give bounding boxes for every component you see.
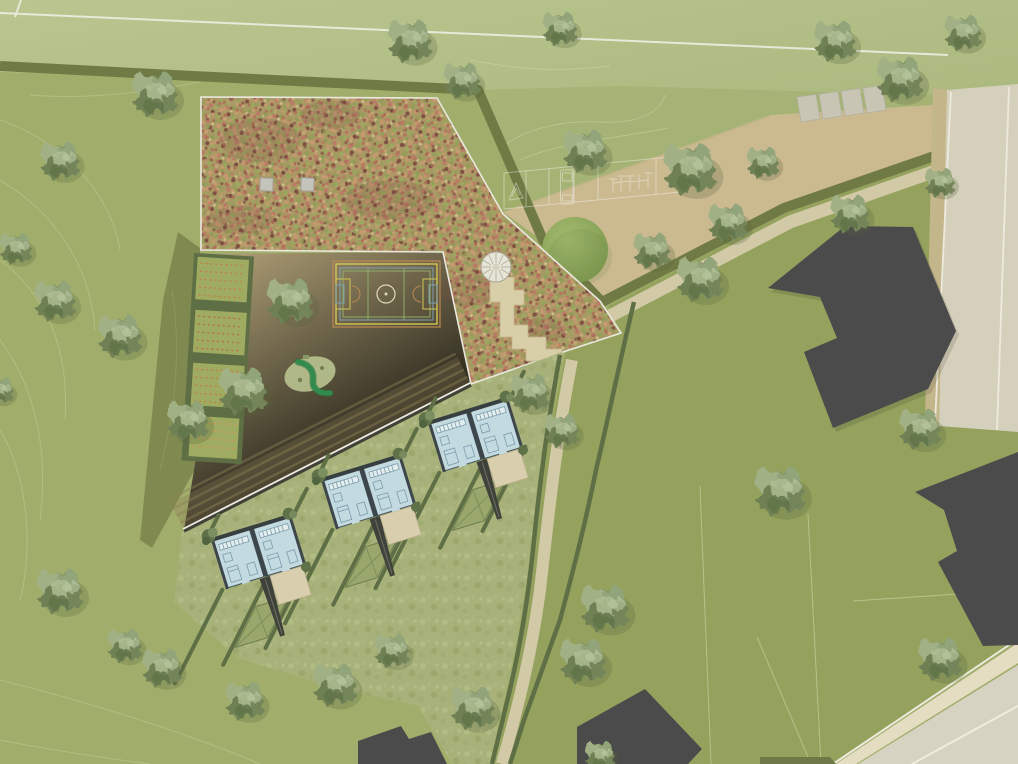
site-plan-canvas bbox=[0, 0, 1018, 764]
grain-overlay bbox=[0, 0, 1018, 764]
site-plan-svg bbox=[0, 0, 1018, 764]
